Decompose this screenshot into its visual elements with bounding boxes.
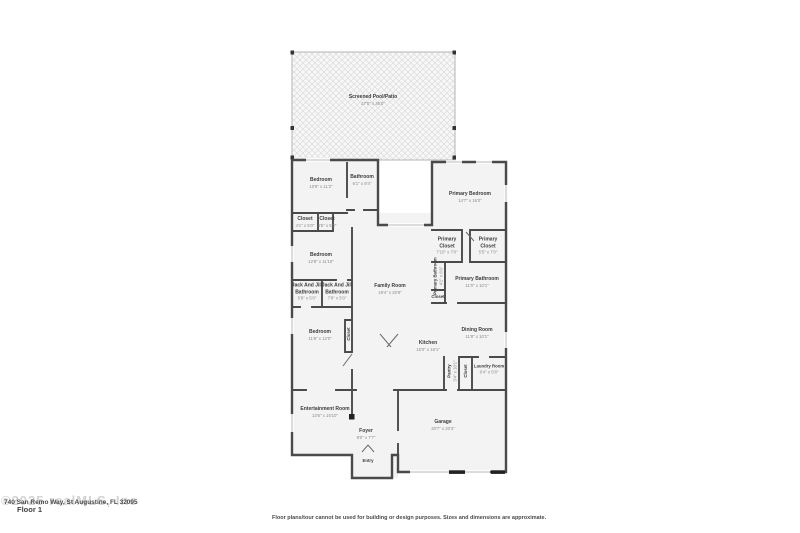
room-label-entertainment-room: Entertainment Room 13'6" x 15'10" — [300, 406, 349, 418]
room-label-garage: Garage 20'7" x 20'3" — [431, 419, 455, 431]
room-label-primary-closet-1: Primary Closet 7'10" x 7'0" — [434, 237, 460, 256]
floor-plan-drawing — [0, 0, 800, 533]
floor-plan-page: Screened Pool/Patio 27'0" x 36'0" Bedroo… — [0, 0, 800, 533]
room-label-kitchen: Kitchen 15'0" x 16'1" — [416, 340, 440, 352]
room-label-jackjill-bath-2: Jack And Jill Bathroom 7'8" x 5'0" — [320, 283, 354, 302]
room-label-pool: Screened Pool/Patio 27'0" x 36'0" — [349, 94, 397, 106]
room-label-jackjill-bath-1: Jack And Jill Bathroom 5'8" x 5'0" — [290, 283, 324, 302]
room-label-pantry: Pantry 3'4" x 10'1" — [446, 360, 457, 381]
room-floor-fills — [292, 160, 508, 478]
room-label-primary-closet-2: Primary Closet 5'5" x 7'0" — [475, 237, 501, 256]
room-label-closet-4: Closet — [431, 294, 444, 300]
room-label-bedroom-2: Bedroom 12'8" x 11'10" — [308, 252, 334, 264]
disclaimer-text: Floor plans/tour cannot be used for buil… — [272, 515, 546, 521]
room-label-primary-bathroom: Primary Bathroom 11'0" x 10'1" — [455, 276, 499, 288]
room-label-closet-3: Closet — [346, 327, 352, 340]
floor-label: Floor 1 — [17, 505, 42, 514]
room-label-closet-2: Closet 4'5" x 5'0" — [318, 216, 337, 228]
room-label-bathroom-1: Bathroom 6'1" x 9'4" — [350, 174, 374, 186]
room-label-laundry-room: Laundry Room 6'4" x 5'8" — [474, 363, 504, 374]
room-label-dining-room: Dining Room 11'8" x 10'1" — [461, 327, 492, 339]
room-label-primary-bath-wc: Primary Bathroom 4'1" x 6'0" — [432, 257, 443, 295]
room-label-foyer: Foyer 8'0" x 7'7" — [357, 428, 376, 440]
room-label-closet-1: Closet 4'1" x 5'0" — [296, 216, 315, 228]
room-label-family-room: Family Room 19'4" x 20'9" — [374, 283, 405, 295]
room-label-entry: Entry — [363, 458, 374, 464]
room-label-primary-bedroom: Primary Bedroom 14'7" x 16'0" — [449, 191, 491, 203]
fireplace-post — [349, 414, 355, 420]
room-label-closet-5: Closet — [463, 364, 469, 377]
room-label-bedroom-1: Bedroom 10'8" x 11'2" — [309, 177, 332, 189]
room-label-bedroom-3: Bedroom 11'8" x 12'0" — [308, 329, 331, 341]
